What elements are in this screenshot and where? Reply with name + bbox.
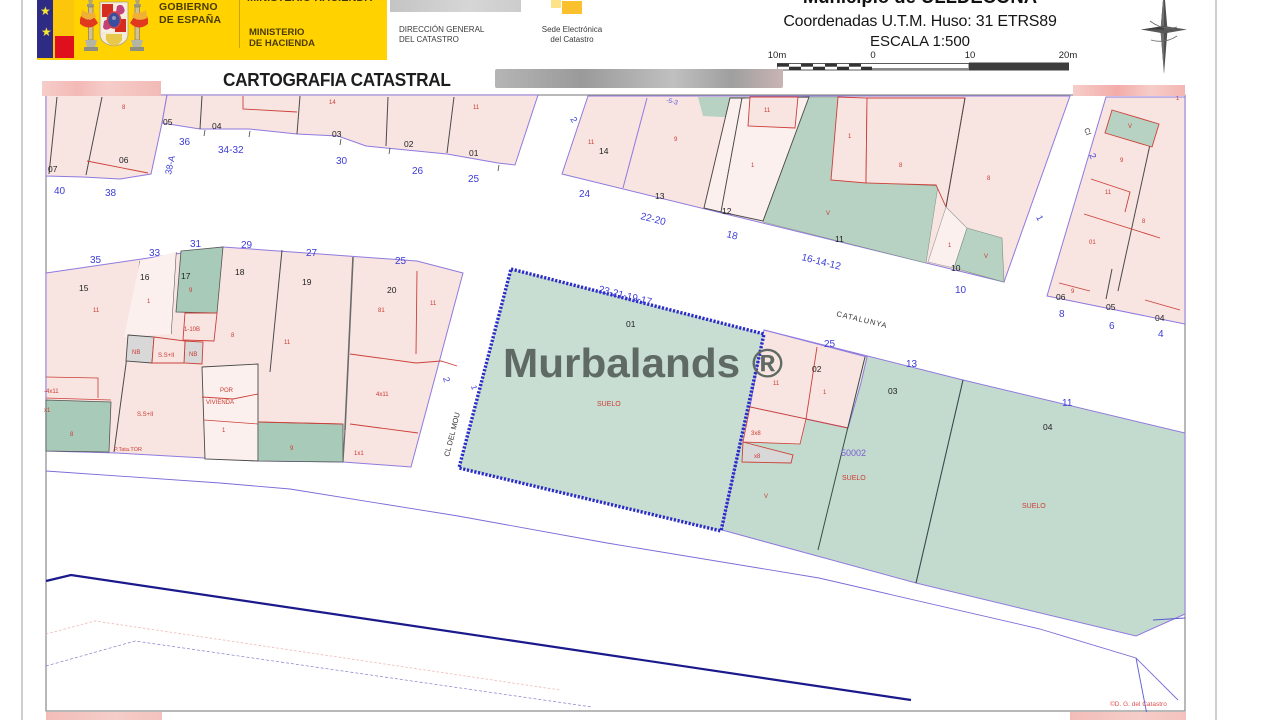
svg-text:26: 26 [412,166,424,177]
svg-text:S.S+II: S.S+II [158,353,175,359]
svg-text:30: 30 [336,156,348,167]
svg-text:29: 29 [241,240,253,251]
svg-text:10: 10 [951,263,961,273]
svg-text:03: 03 [332,129,342,139]
svg-text:13: 13 [655,191,665,201]
svg-text:1x1: 1x1 [354,451,364,457]
svg-text:13: 13 [906,359,918,370]
svg-text:1-10B: 1-10B [184,327,200,333]
svg-text:24: 24 [579,189,591,200]
svg-text:11: 11 [430,301,437,307]
svg-text:25: 25 [468,174,480,185]
svg-text:V: V [826,211,830,217]
svg-text:17: 17 [181,271,191,281]
svg-text:SUELO: SUELO [842,475,866,482]
svg-text:11: 11 [1062,398,1073,409]
svg-text:x8: x8 [754,454,761,460]
svg-text:8: 8 [1059,309,1065,320]
svg-text:POR: POR [220,388,234,394]
svg-text:50002: 50002 [841,448,866,458]
svg-text:35: 35 [90,255,102,266]
svg-text:P.Tata.TOR: P.Tata.TOR [114,447,142,453]
svg-text:25: 25 [824,339,836,350]
svg-text:6: 6 [1109,321,1115,332]
svg-text:27: 27 [306,248,318,259]
svg-text:31: 31 [190,239,202,250]
svg-text:02: 02 [404,139,414,149]
svg-text:11: 11 [473,105,480,111]
svg-text:3x8: 3x8 [751,431,761,437]
svg-text:04: 04 [1043,422,1053,432]
svg-text:11: 11 [284,340,291,346]
svg-text:40: 40 [54,186,66,197]
svg-text:01: 01 [469,148,479,158]
svg-text:V: V [984,254,988,260]
svg-text:04: 04 [1155,313,1165,323]
svg-text:06: 06 [119,155,129,165]
svg-text:4: 4 [1158,329,1164,340]
svg-text:S.S+II: S.S+II [137,412,154,418]
svg-text:02: 02 [812,364,822,374]
svg-text:11: 11 [588,140,595,146]
svg-text:03: 03 [888,386,898,396]
svg-text:01: 01 [1089,240,1096,246]
svg-text:V: V [1128,124,1132,130]
svg-text:06: 06 [1056,292,1066,302]
svg-text:14: 14 [329,100,336,106]
svg-text:x1: x1 [44,408,51,414]
svg-text:11: 11 [1105,190,1112,196]
svg-text:10: 10 [955,285,967,296]
svg-text:18: 18 [235,267,245,277]
svg-text:05: 05 [1106,302,1116,312]
svg-text:25: 25 [395,256,407,267]
svg-text:11: 11 [93,308,100,314]
svg-text:-4x11: -4x11 [44,389,59,395]
svg-text:34-32: 34-32 [218,145,244,156]
svg-text:NB: NB [132,350,140,356]
svg-text:NB: NB [189,352,197,358]
svg-text:11: 11 [835,234,844,244]
svg-text:V: V [764,494,768,500]
svg-text:16: 16 [140,272,150,282]
svg-text:04: 04 [212,121,222,131]
svg-text:19: 19 [302,277,312,287]
svg-text:38: 38 [105,188,117,199]
svg-text:SUELO: SUELO [597,401,621,408]
svg-text:15: 15 [79,283,89,293]
svg-text:SUELO: SUELO [1022,503,1046,510]
svg-text:4x11: 4x11 [376,392,389,398]
svg-text:36: 36 [179,137,191,148]
svg-text:20: 20 [387,285,397,295]
svg-text:81: 81 [378,308,385,314]
svg-text:07: 07 [48,164,58,174]
svg-text:14: 14 [599,146,609,156]
svg-text:01: 01 [626,319,636,329]
svg-text:11: 11 [764,108,771,114]
svg-text:33: 33 [149,248,161,259]
svg-text:VIVIENDA: VIVIENDA [206,400,234,406]
svg-text:05: 05 [163,117,173,127]
svg-text:Murbalands ®: Murbalands ® [503,340,783,386]
svg-text:©D. G. del Catastro: ©D. G. del Catastro [1110,700,1167,708]
svg-text:12: 12 [722,206,732,216]
